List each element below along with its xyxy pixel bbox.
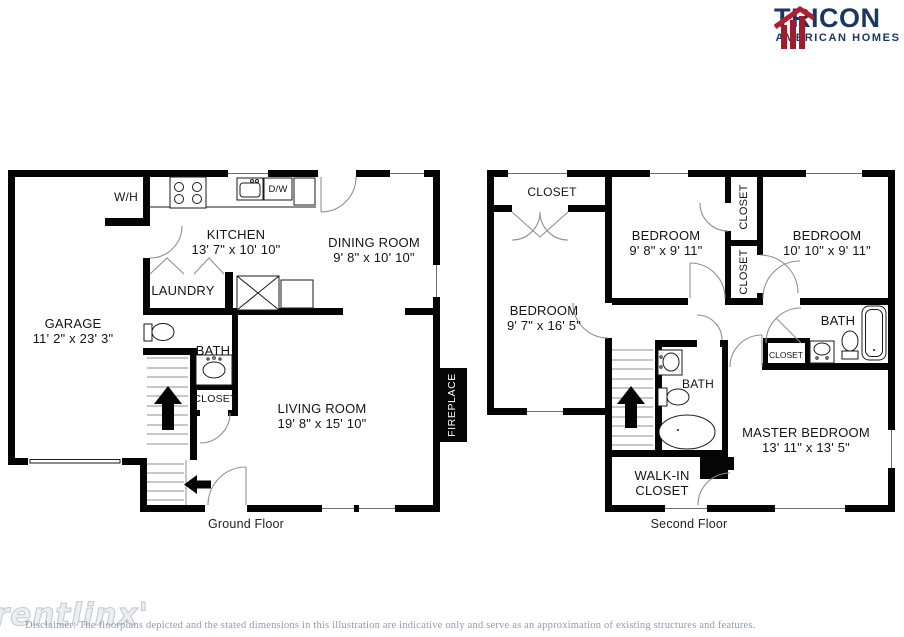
bath-sink bbox=[810, 341, 834, 363]
floorplan-drawing bbox=[0, 0, 904, 637]
toilet bbox=[842, 331, 858, 351]
room-label-garage: GARAGE 11' 2" x 23' 3" bbox=[33, 317, 114, 346]
room-label-bath-right: BATH bbox=[821, 314, 856, 329]
toilet-tank bbox=[842, 351, 858, 359]
room-label-wh: W/H bbox=[114, 190, 138, 205]
disclaimer-text: Disclaimer: The floorplans depicted and … bbox=[25, 620, 756, 631]
room-label-closet-top: CLOSET bbox=[527, 185, 576, 200]
bathtub bbox=[659, 415, 715, 449]
room-label-bath: BATH bbox=[196, 344, 231, 359]
toilet-tank bbox=[658, 388, 667, 406]
room-label-bedroom-right: BEDROOM 10' 10" x 9' 11" bbox=[783, 229, 871, 258]
appliance-box bbox=[281, 280, 313, 308]
room-label-dining: DINING ROOM 9' 8" x 10' 10" bbox=[328, 236, 420, 265]
kitchen-fixtures bbox=[150, 177, 316, 208]
fireplace-label: FIREPLACE bbox=[446, 373, 458, 437]
laundry-bifold-door bbox=[194, 258, 224, 274]
toilet bbox=[152, 324, 174, 341]
room-label-master: MASTER BEDROOM 13' 11" x 13' 5" bbox=[742, 426, 870, 455]
room-label-bedroom-mid: BEDROOM 9' 8" x 9' 11" bbox=[629, 229, 702, 258]
tricon-house-icon bbox=[774, 5, 814, 49]
room-label-kitchen: KITCHEN 13' 7" x 10' 10" bbox=[192, 228, 281, 257]
room-label-closet-hall: CLOSET bbox=[769, 348, 803, 363]
toilet-tank bbox=[144, 324, 152, 341]
room-label-bath-mid: BATH bbox=[682, 377, 714, 392]
room-label-living: LIVING ROOM 19' 8" x 15' 10" bbox=[278, 402, 367, 431]
room-label-bedroom-left: BEDROOM 9' 7" x 16' 5" bbox=[507, 304, 581, 333]
mid-bath-fixtures bbox=[658, 350, 715, 449]
laundry-bifold-door bbox=[150, 258, 184, 274]
room-label-closet-upper: CLOSET bbox=[737, 184, 752, 229]
room-label-laundry: LAUNDRY bbox=[151, 284, 214, 299]
stove bbox=[170, 177, 206, 208]
entry-direction-arrow bbox=[184, 475, 211, 494]
refrigerator bbox=[294, 178, 315, 205]
tricon-logo: TRICON AMERICAN HOMES bbox=[774, 5, 902, 44]
second-stairs bbox=[612, 350, 653, 445]
room-label-walkin: WALK-IN CLOSET bbox=[634, 469, 689, 498]
stairs-up-arrow bbox=[154, 386, 182, 430]
floorplan-page: W/H D/W KITCHEN 13' 7" x 10' 10" DINING … bbox=[0, 0, 904, 637]
room-label-closet-lower: CLOSET bbox=[737, 249, 752, 294]
laundry-fixtures bbox=[237, 276, 313, 310]
room-label-closet: CLOSET bbox=[193, 392, 236, 407]
chase-block bbox=[700, 452, 728, 479]
room-label-dw: D/W bbox=[268, 183, 287, 198]
second-floor-plan bbox=[487, 170, 895, 512]
second-floor-caption: Second Floor bbox=[651, 517, 728, 532]
ground-floor-caption: Ground Floor bbox=[208, 517, 284, 532]
